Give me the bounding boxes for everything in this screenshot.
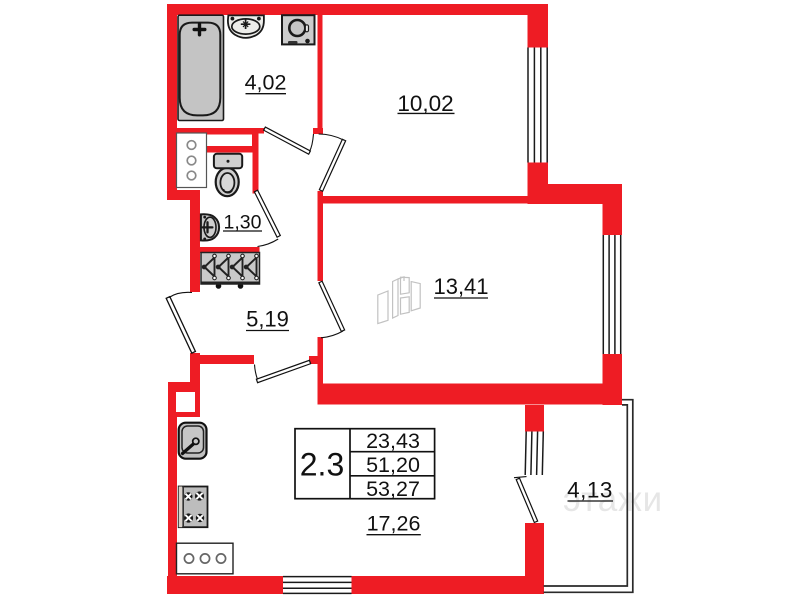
svg-text:13,41: 13,41 [433,274,488,299]
svg-text:51,20: 51,20 [366,453,420,477]
svg-text:4,02: 4,02 [245,71,287,95]
svg-text:4,13: 4,13 [567,478,613,503]
svg-text:10,02: 10,02 [397,91,453,116]
svg-text:1,30: 1,30 [224,211,262,233]
svg-text:5,19: 5,19 [246,307,289,332]
svg-text:2.3: 2.3 [300,447,344,483]
svg-text:23,43: 23,43 [366,429,420,453]
svg-text:53,27: 53,27 [366,477,420,501]
svg-text:17,26: 17,26 [367,512,421,536]
